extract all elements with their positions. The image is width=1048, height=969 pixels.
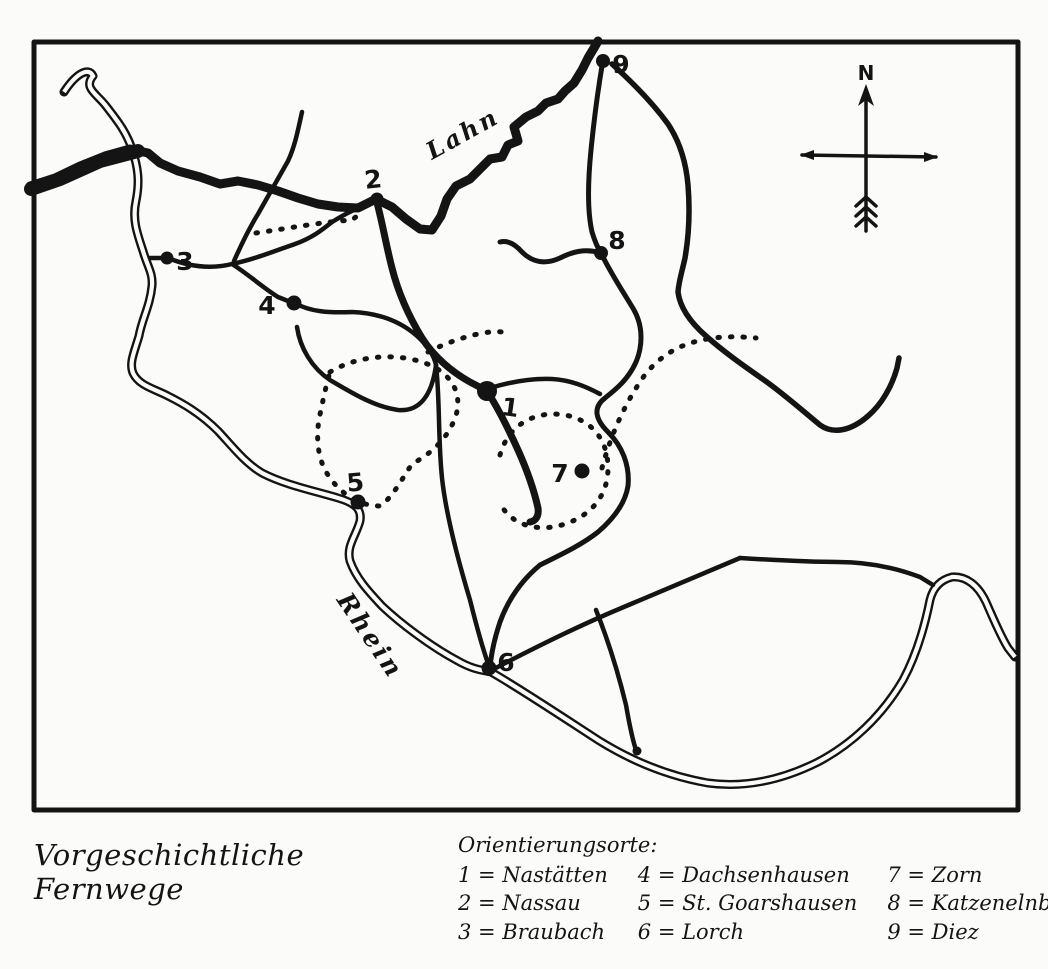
route-network [150,64,933,753]
marker-dot-nastaetten [477,381,497,401]
legend-entry: 9 = Diez [887,919,1048,947]
legend-entry: 3 = Braubach [458,919,608,947]
lahn-river [30,41,598,230]
marker-dot-braubach [161,252,174,265]
legend-entry: 8 = Katzenelnbogen [887,890,1048,918]
legend-heading: Orientierungsorte: [458,832,1048,860]
scanned-map-page: { "title": "Vorgeschichtliche Fernwege",… [0,0,1048,969]
legend-grid: 1 = Nastätten 2 = Nassau 3 = Braubach 4 … [458,862,1048,947]
marker-dot-zorn [575,464,590,479]
compass-rose: N [800,61,938,231]
dotted-route-network [256,212,756,528]
legend-entry: 5 = St. Goarshausen [638,890,858,918]
marker-dot-dachsenhausen [287,296,302,311]
compass-north-label: N [858,61,875,85]
legend-entry: 7 = Zorn [887,862,1048,890]
map-title: Vorgeschichtliche Fernwege [34,838,434,906]
map-panel: 1 2 3 4 5 6 7 8 9 Lahn Rhein N [0,0,1048,815]
legend: Orientierungsorte: 1 = Nastätten 2 = Nas… [458,832,1048,947]
marker-label-6: 6 [497,648,514,677]
town-markers [161,54,642,756]
legend-entry: 2 = Nassau [458,890,608,918]
marker-label-1: 1 [500,392,521,423]
marker-dot-nassau [371,193,384,206]
marker-label-9: 9 [612,50,629,79]
caption-row: Vorgeschichtliche Fernwege Orientierungs… [0,826,1048,947]
marker-label-3: 3 [176,247,193,276]
marker-dot-diez [596,54,610,68]
marker-label-8: 8 [608,226,625,255]
marker-dot-small [633,747,642,756]
marker-dot-lorch [482,661,497,676]
marker-label-2: 2 [363,164,383,195]
legend-entry: 4 = Dachsenhausen [638,862,858,890]
rhein-river-label: Rhein [330,586,409,684]
marker-label-5: 5 [345,467,365,497]
marker-label-7: 7 [551,459,568,488]
marker-dot-katzenelnbogen [594,246,608,260]
marker-label-4: 4 [258,291,275,320]
hand-drawn-map: 1 2 3 4 5 6 7 8 9 Lahn Rhein N [0,0,1048,815]
legend-entry: 6 = Lorch [638,919,858,947]
legend-entry: 1 = Nastätten [458,862,608,890]
town-marker-numbers: 1 2 3 4 5 6 7 8 9 [176,50,629,677]
